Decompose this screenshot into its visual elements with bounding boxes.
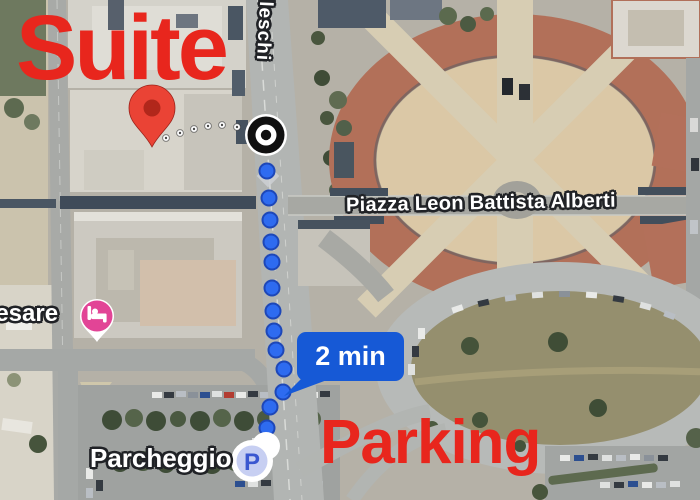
suite-annotation: Suite bbox=[16, 2, 226, 94]
route-origin-marker[interactable] bbox=[245, 114, 287, 156]
hotel-name-label: Cesare bbox=[0, 300, 58, 328]
parking-marker[interactable]: P bbox=[231, 432, 280, 482]
map-viewport[interactable]: P Suite Parking Piazza Leon Battista Alb… bbox=[0, 0, 700, 500]
route-duration-badge[interactable]: 2 min bbox=[297, 332, 404, 381]
street-name-label: elleschi bbox=[251, 0, 277, 62]
hotel-lodging-pin[interactable] bbox=[80, 299, 114, 342]
piazza-map-label: Piazza Leon Battista Alberti bbox=[346, 190, 616, 218]
walking-route-dots bbox=[260, 164, 292, 436]
route-duration-text: 2 min bbox=[315, 341, 386, 372]
parking-lot-label: Parcheggio bbox=[90, 443, 232, 474]
pin-connector-dots bbox=[163, 122, 241, 142]
parking-annotation: Parking bbox=[320, 412, 540, 474]
parking-icon-letter: P bbox=[244, 449, 260, 476]
